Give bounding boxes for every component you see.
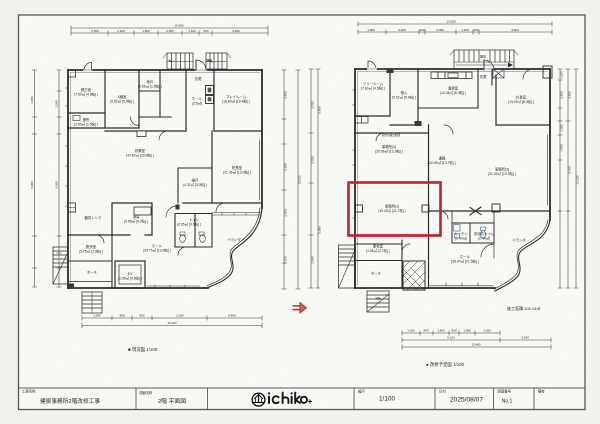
svg-text:1,900: 1,900 (367, 28, 375, 32)
svg-text:5,060: 5,060 (55, 181, 59, 189)
svg-text:図面番号: 図面番号 (498, 389, 512, 394)
svg-text:5,180: 5,180 (284, 163, 288, 171)
svg-text:2,200: 2,200 (284, 209, 288, 217)
svg-text:健泉事務所2階改修工事: 健泉事務所2階改修工事 (40, 397, 100, 405)
svg-text:物入: 物入 (401, 90, 408, 95)
svg-text:工事名称: 工事名称 (22, 389, 36, 394)
svg-text:(2.50㎡ [1.5帖] ): (2.50㎡ [1.5帖] ) (74, 121, 98, 126)
svg-text:(1.35㎡ [0.8帖] ): (1.35㎡ [0.8帖] ) (118, 275, 142, 280)
svg-text:多目的トイレ: 多目的トイレ (474, 231, 495, 236)
svg-text:2,050: 2,050 (436, 28, 444, 32)
svg-text:3,540: 3,540 (521, 336, 529, 340)
svg-text:3,600: 3,600 (511, 28, 519, 32)
svg-text:稽古室: 稽古室 (81, 87, 92, 92)
svg-text:2,000: 2,000 (166, 29, 174, 33)
svg-text:6,400: 6,400 (318, 106, 322, 114)
svg-text:1,100: 1,100 (560, 71, 564, 79)
svg-text:3,600: 3,600 (232, 29, 240, 33)
svg-text:12,460: 12,460 (471, 343, 481, 347)
svg-text:通路: 通路 (439, 156, 446, 161)
svg-text:(21.45㎡ [13.0帖] ): (21.45㎡ [13.0帖] ) (223, 169, 251, 174)
svg-text:4,600: 4,600 (568, 91, 572, 99)
svg-text:踊場: 踊場 (206, 58, 212, 63)
svg-text:13,160: 13,160 (576, 175, 580, 185)
svg-text:EV: EV (128, 272, 133, 276)
svg-text:1,150: 1,150 (461, 28, 469, 32)
svg-text:(9.52㎡ [5.9帖] ): (9.52㎡ [5.9帖] ) (110, 98, 134, 103)
svg-text:(19.26㎡ [11.7帖] ): (19.26㎡ [11.7帖] ) (378, 208, 406, 213)
svg-text:2,200: 2,200 (398, 28, 406, 32)
svg-text:1,090: 1,090 (483, 329, 491, 333)
svg-text:(31.05㎡ [24.3帖] ): (31.05㎡ [24.3帖] ) (488, 171, 516, 176)
svg-text:2,860: 2,860 (560, 91, 564, 99)
svg-text:(4.32㎡ [3.0帖] ): (4.32㎡ [3.0帖] ) (183, 182, 207, 187)
svg-text:(22.59㎡ [13.7帖] ): (22.59㎡ [13.7帖] ) (428, 160, 456, 165)
svg-text:プレイルーム: プレイルーム (226, 94, 247, 99)
svg-text:2,500: 2,500 (91, 29, 99, 33)
svg-text:1,400: 1,400 (560, 144, 564, 152)
svg-text:900: 900 (139, 314, 144, 318)
svg-text:1,520: 1,520 (407, 329, 415, 333)
svg-text:施工面積:103.14㎡: 施工面積:103.14㎡ (507, 305, 540, 311)
svg-text:フリールーム: フリールーム (363, 81, 384, 86)
svg-text:備考: 備考 (538, 389, 545, 394)
svg-text:器具シンク: 器具シンク (85, 215, 102, 220)
svg-text:■ 現況図 1/100: ■ 現況図 1/100 (128, 346, 158, 353)
svg-text:5,760: 5,760 (568, 166, 572, 174)
svg-text:(38.94㎡ [21.5帖] ): (38.94㎡ [21.5帖] ) (451, 258, 479, 263)
svg-text:(2.66㎡ [1.6帖] ): (2.66㎡ [1.6帖] ) (138, 83, 162, 88)
svg-text:5,400: 5,400 (228, 314, 236, 318)
svg-text:踊場: 踊場 (480, 54, 486, 59)
svg-text:● 改修予定図 1/100: ● 改修予定図 1/100 (426, 361, 465, 368)
svg-text:昇降: 昇降 (375, 297, 381, 301)
svg-text:2025/08/07: 2025/08/07 (450, 396, 483, 403)
svg-text:ホール: ホール (192, 96, 203, 101)
svg-text:(0.95㎡ [0.6帖] ): (0.95㎡ [0.6帖] ) (177, 221, 201, 226)
svg-text:840: 840 (423, 329, 428, 333)
svg-text:(2.40㎡): (2.40㎡) (455, 235, 467, 240)
svg-text:1/100: 1/100 (379, 395, 395, 402)
svg-text:400: 400 (419, 28, 424, 32)
svg-text:ポーチ: ポーチ (87, 270, 98, 275)
svg-text:納戸: 納戸 (147, 79, 154, 84)
svg-text:8,980: 8,980 (30, 181, 34, 189)
svg-text:15,850: 15,850 (174, 24, 184, 28)
svg-text:2階 平面図: 2階 平面図 (158, 397, 186, 405)
svg-text:5,080: 5,080 (318, 226, 322, 234)
svg-text:診察室: 診察室 (135, 148, 146, 153)
svg-text:社長室: 社長室 (516, 95, 527, 100)
svg-text:ポーチ: ポーチ (371, 271, 382, 276)
svg-text:980: 980 (119, 314, 124, 318)
svg-text:(9.52㎡ [5.9帖] ): (9.52㎡ [5.9帖] ) (392, 94, 416, 99)
svg-text:湯沸室: 湯沸室 (448, 86, 459, 91)
svg-text:縮尺: 縮尺 (358, 389, 365, 394)
svg-text:ベランダ: ベランダ (227, 237, 241, 242)
svg-text:1,100: 1,100 (188, 29, 196, 33)
svg-text:6,120: 6,120 (447, 336, 455, 340)
svg-text:日付: 日付 (439, 389, 446, 394)
svg-text:2,640: 2,640 (311, 256, 315, 264)
svg-text:(16.80㎡ [10.4帖] ): (16.80㎡ [10.4帖] ) (222, 98, 250, 103)
svg-text:(4.56㎡ [2.7帖] ): (4.56㎡ [2.7帖] ) (366, 248, 390, 253)
svg-text:更衣室: 更衣室 (373, 244, 384, 249)
svg-text:(30.75㎡ [13.9帖] ): (30.75㎡ [13.9帖] ) (143, 247, 171, 252)
svg-text:15,400: 15,400 (167, 321, 177, 325)
svg-text:(3.75㎡ [2.3帖] ): (3.75㎡ [2.3帖] ) (79, 248, 103, 253)
svg-text:(42.60㎡ [26.0帖] ): (42.60㎡ [26.0帖] ) (126, 152, 154, 157)
svg-text:450: 450 (203, 29, 208, 33)
svg-text:1,300: 1,300 (93, 314, 101, 318)
svg-text:2,200: 2,200 (117, 29, 125, 33)
svg-text:(7.60㎡ [4.5帖] ): (7.60㎡ [4.5帖] ) (74, 91, 98, 96)
svg-text:1,300: 1,300 (560, 124, 564, 132)
svg-text:事務所(3): 事務所(3) (495, 167, 509, 172)
svg-text:15,060: 15,060 (298, 175, 302, 185)
svg-text:脱衣室: 脱衣室 (86, 244, 97, 249)
svg-text:(5.95㎡ [4.2帖] ): (5.95㎡ [4.2帖] ) (124, 218, 148, 223)
svg-text:納戸: 納戸 (192, 178, 199, 183)
svg-text:消毒: 消毒 (133, 214, 140, 219)
svg-text:(7.60㎡ [4.5帖] ): (7.60㎡ [4.5帖] ) (361, 85, 385, 90)
svg-text:1,600: 1,600 (142, 29, 150, 33)
svg-text:トイレ: トイレ (189, 218, 200, 222)
svg-text:事務所(1): 事務所(1) (385, 204, 399, 209)
svg-text:(13.05㎡ [8.0帖] ): (13.05㎡ [8.0帖] ) (508, 99, 534, 104)
svg-text:2,000: 2,000 (176, 314, 184, 318)
svg-text:キッチン: キッチン (454, 231, 468, 236)
svg-text:図面名称: 図面名称 (140, 390, 154, 395)
svg-text:5,200: 5,200 (311, 156, 315, 164)
svg-text:4,950: 4,950 (30, 96, 34, 104)
svg-text:(2.40㎡): (2.40㎡) (478, 235, 490, 240)
svg-text:事務所(2): 事務所(2) (382, 144, 396, 149)
svg-text:便所: 便所 (83, 117, 90, 122)
svg-text:400: 400 (473, 28, 478, 32)
svg-text:玄関: 玄関 (480, 74, 487, 79)
svg-text:1,060: 1,060 (55, 100, 59, 108)
svg-text:13,050: 13,050 (446, 20, 456, 24)
svg-text:ベランダ: ベランダ (512, 238, 526, 243)
svg-text:ホール: ホール (152, 243, 163, 248)
svg-text:ホール: ホール (460, 254, 471, 259)
svg-text:玄関: 玄関 (195, 76, 202, 81)
svg-text:(10.36㎡ [6.3帖] ): (10.36㎡ [6.3帖] ) (440, 90, 466, 95)
svg-text:(20.96㎡ [12.9帖] ): (20.96㎡ [12.9帖] ) (375, 148, 403, 153)
svg-text:No.1: No.1 (502, 399, 513, 405)
svg-text:840: 840 (451, 329, 456, 333)
svg-text:2,100: 2,100 (284, 256, 288, 264)
svg-text:4,500: 4,500 (284, 91, 288, 99)
svg-text:1,090: 1,090 (463, 329, 471, 333)
svg-text:3,030: 3,030 (311, 101, 315, 109)
svg-text:X線室: X線室 (117, 94, 127, 99)
svg-text:院長室: 院長室 (232, 165, 243, 170)
svg-text:(2.5㎡): (2.5㎡) (192, 100, 202, 105)
svg-text:1,400: 1,400 (437, 329, 445, 333)
